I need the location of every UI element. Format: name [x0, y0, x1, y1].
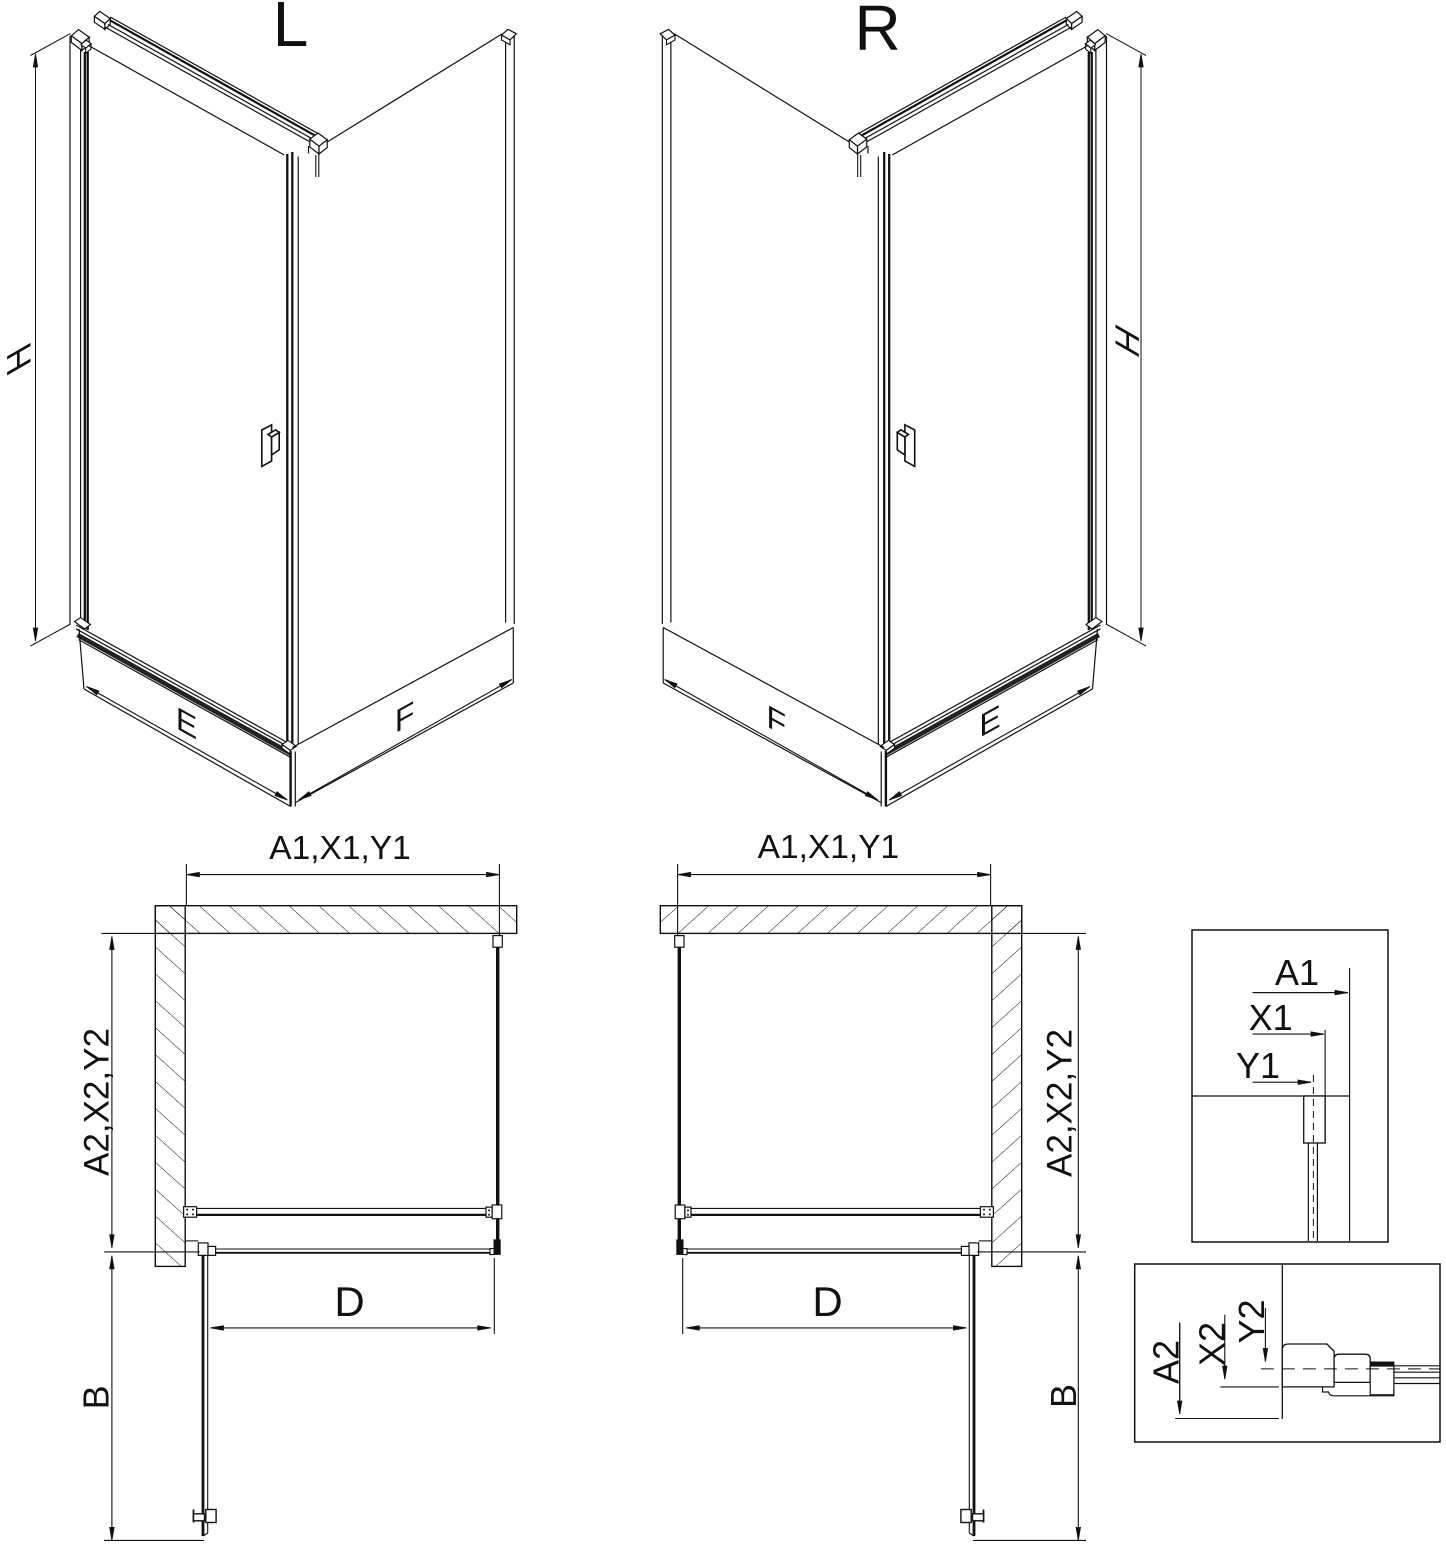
svg-text:D: D — [812, 1278, 842, 1325]
svg-text:X1: X1 — [1249, 997, 1293, 1038]
svg-text:X2: X2 — [1192, 1322, 1233, 1366]
svg-text:A1,X1,Y1: A1,X1,Y1 — [758, 829, 900, 866]
svg-text:B: B — [1043, 1384, 1084, 1408]
svg-text:D: D — [334, 1278, 364, 1325]
svg-text:A1,X1,Y1: A1,X1,Y1 — [269, 830, 411, 867]
svg-text:Y1: Y1 — [1236, 1045, 1280, 1086]
svg-text:R: R — [855, 0, 901, 64]
svg-text:A2,X2,Y2: A2,X2,Y2 — [77, 1028, 116, 1176]
svg-text:L: L — [273, 0, 309, 60]
svg-text:B: B — [75, 1385, 116, 1409]
svg-text:Y2: Y2 — [1231, 1299, 1272, 1343]
svg-text:A2: A2 — [1146, 1340, 1187, 1384]
svg-text:A1: A1 — [1275, 952, 1319, 993]
svg-text:A2,X2,Y2: A2,X2,Y2 — [1040, 1029, 1079, 1177]
